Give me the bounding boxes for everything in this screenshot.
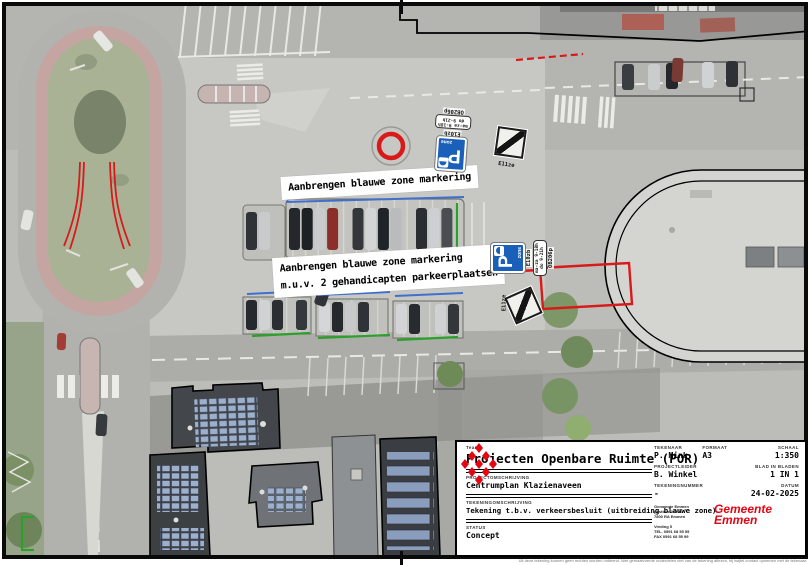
logo-tree-icon bbox=[457, 442, 501, 488]
disclaimer-text: Uit deze tekening kunnen geen rechten wo… bbox=[470, 558, 807, 563]
projectleider-value: B. Winkel bbox=[654, 470, 727, 480]
status-value: Concept bbox=[466, 531, 652, 541]
parking-row-2 bbox=[243, 297, 463, 338]
roundabout bbox=[18, 10, 186, 335]
sign-e11-zone-end-north bbox=[494, 126, 527, 159]
drawing-value: Tekening t.b.v. verkeersbesluit (uitbrei… bbox=[466, 506, 652, 516]
blad-value: 1 IN 1 bbox=[727, 470, 800, 480]
separator bbox=[466, 519, 652, 523]
zone-text: zone bbox=[517, 247, 523, 258]
sign-e10-zone-begin-north: P zone E10zb ma-za 9-18h do 9-21h OB206p bbox=[432, 107, 472, 172]
parking-disc-zone-sign: P zone bbox=[435, 136, 467, 172]
parking-disc-zone-sign: P zone bbox=[491, 243, 525, 273]
parking-disc-icon bbox=[438, 157, 449, 168]
visit-line: FAX 0591 68 55 99 bbox=[654, 534, 714, 539]
schaal-value: 1:350 bbox=[751, 451, 799, 461]
title-block: Team Projecten Openbare Ruimte (POR) PRO… bbox=[455, 440, 807, 557]
building-right-rounded bbox=[605, 170, 810, 362]
gemeente-emmen-logo: Gemeente Emmen bbox=[714, 504, 772, 526]
time-line-2: do 9-21h bbox=[540, 243, 545, 273]
tekenaar-value: P. Mink bbox=[654, 451, 702, 461]
formaat-value: A3 bbox=[702, 451, 750, 461]
tekeningnummer-value: - bbox=[654, 489, 727, 499]
sign-code-ob206p: OB206p bbox=[548, 247, 554, 269]
sign-e10-zone-begin-east: P zone E10zb ma-za 9-18h do 9-21h OB206p bbox=[491, 241, 583, 275]
logo-text-line2: Emmen bbox=[714, 515, 772, 526]
datum-value: 24-02-2025 bbox=[727, 489, 800, 499]
drawing-sheet: Aanbrengen blauwe zone markering Aanbren… bbox=[0, 0, 810, 565]
sign-code-e10: E10zb bbox=[526, 249, 532, 268]
sign-code-e11-south: E11ze bbox=[501, 295, 507, 312]
separator bbox=[466, 494, 652, 498]
time-panel: ma-za 9-18h do 9-21h bbox=[435, 114, 472, 130]
title-block-right: TEKENAAR P. Mink FORMAAT A3 SCHAAL 1:350… bbox=[652, 442, 805, 555]
zone-text: zone bbox=[441, 138, 453, 145]
p-letter: P bbox=[448, 146, 462, 166]
address-block: Gemeente Emmen postbus 30001 7800 RA Emm… bbox=[654, 504, 714, 539]
parking-disc-icon bbox=[494, 246, 504, 256]
p-letter: P bbox=[497, 255, 516, 268]
time-panel: ma-za 9-18h do 9-21h bbox=[533, 240, 547, 276]
